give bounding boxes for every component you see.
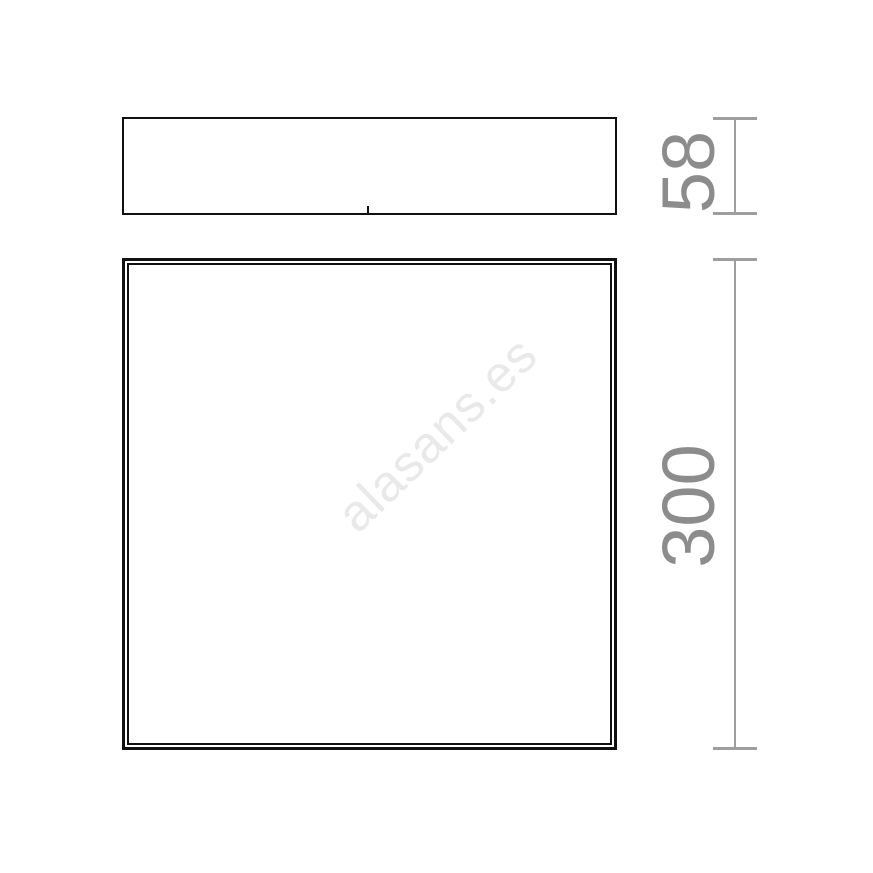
dimension-cap-top-300 (713, 258, 757, 261)
dimension-cap-top-58 (713, 117, 757, 120)
dimension-label-300: 300 (652, 444, 726, 567)
side-view-outline (122, 117, 617, 215)
dimension-line-58 (734, 119, 736, 213)
center-tick-mark (367, 206, 369, 213)
dimension-label-58: 58 (652, 131, 726, 213)
dimension-cap-bottom-300 (713, 747, 757, 750)
dimension-line-300 (734, 260, 736, 748)
